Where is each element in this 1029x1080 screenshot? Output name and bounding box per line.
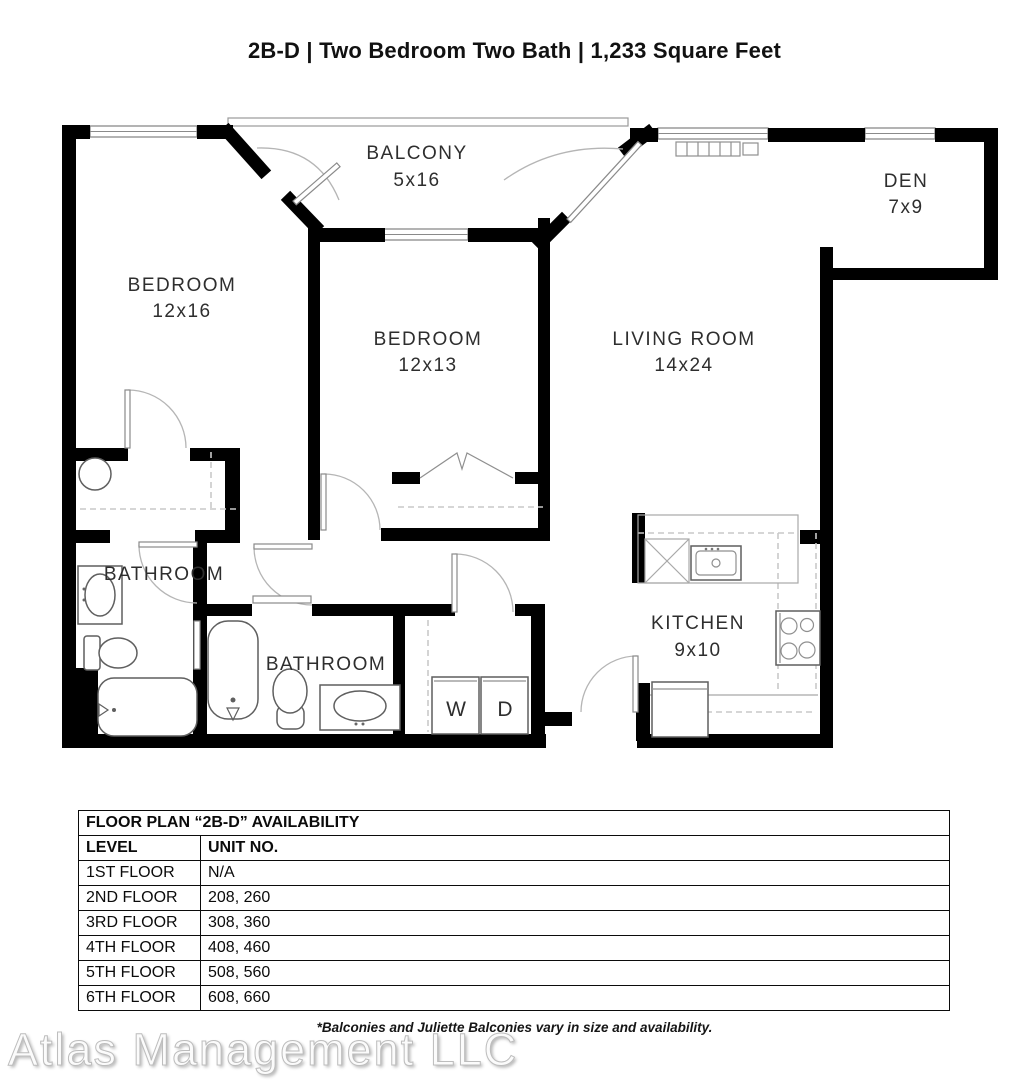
units-cell: 608, 660 xyxy=(201,986,950,1011)
bathtub-fixture xyxy=(98,678,197,736)
room-label-bathroom2: BATHROOM xyxy=(266,654,386,675)
table-row: 5TH FLOOR 508, 560 xyxy=(79,961,950,986)
toilet2-fixture xyxy=(273,669,307,729)
units-cell: 408, 460 xyxy=(201,936,950,961)
units-cell: 208, 260 xyxy=(201,886,950,911)
level-cell: 5TH FLOOR xyxy=(79,961,201,986)
room-label-bedroom2: BEDROOM xyxy=(374,329,483,350)
room-label-balcony: BALCONY xyxy=(366,143,467,164)
bathtub2-fixture xyxy=(208,621,258,720)
washer-label: W xyxy=(446,698,466,721)
table-row: 4TH FLOOR 408, 460 xyxy=(79,936,950,961)
room-label-bathroom1: BATHROOM xyxy=(104,564,224,585)
toilet-fixture xyxy=(84,636,137,670)
kitchen-sink-fixture xyxy=(691,546,741,580)
room-label-kitchen: KITCHEN xyxy=(651,613,745,634)
fireplace-vent xyxy=(676,142,758,156)
room-dims-kitchen: 9x10 xyxy=(674,640,721,661)
units-cell: 508, 560 xyxy=(201,961,950,986)
bifold-closet-doors xyxy=(420,453,513,478)
room-dims-den: 7x9 xyxy=(888,197,923,218)
column-header-level: LEVEL xyxy=(79,836,201,861)
room-label-den: DEN xyxy=(884,171,929,192)
closet-hamper xyxy=(79,458,111,490)
walls xyxy=(62,125,998,748)
table-row: 3RD FLOOR 308, 360 xyxy=(79,911,950,936)
table-title-row: FLOOR PLAN “2B-D” AVAILABILITY xyxy=(79,811,950,836)
dryer-label: D xyxy=(497,698,512,721)
pantry-cabinet xyxy=(645,539,689,583)
floor-plan-flyer: 2B-D | Two Bedroom Two Bath | 1,233 Squa… xyxy=(0,0,1029,1080)
availability-table: FLOOR PLAN “2B-D” AVAILABILITY LEVEL UNI… xyxy=(78,810,950,1011)
level-cell: 4TH FLOOR xyxy=(79,936,201,961)
kitchen-fixtures xyxy=(638,142,820,737)
table-title: FLOOR PLAN “2B-D” AVAILABILITY xyxy=(79,811,950,836)
column-header-unit-no: UNIT NO. xyxy=(201,836,950,861)
pocket-door xyxy=(253,596,311,603)
balcony-disclaimer: *Balconies and Juliette Balconies vary i… xyxy=(0,1020,1029,1035)
level-cell: 2ND FLOOR xyxy=(79,886,201,911)
units-cell: 308, 360 xyxy=(201,911,950,936)
stove-fixture xyxy=(776,611,820,665)
level-cell: 1ST FLOOR xyxy=(79,861,201,886)
glass-panel xyxy=(194,621,200,669)
room-dims-balcony: 5x16 xyxy=(393,170,440,191)
table-row: 2ND FLOOR 208, 260 xyxy=(79,886,950,911)
windows xyxy=(90,126,935,240)
table-row: 6TH FLOOR 608, 660 xyxy=(79,986,950,1011)
vanity2-sink-fixture xyxy=(320,685,400,730)
balcony-railing xyxy=(228,118,628,126)
level-cell: 3RD FLOOR xyxy=(79,911,201,936)
room-dims-bedroom1: 12x16 xyxy=(152,301,211,322)
refrigerator-fixture xyxy=(652,682,708,737)
room-dims-bedroom2: 12x13 xyxy=(398,355,457,376)
room-dims-living: 14x24 xyxy=(654,355,713,376)
table-header-row: LEVEL UNIT NO. xyxy=(79,836,950,861)
room-label-living: LIVING ROOM xyxy=(612,329,755,350)
level-cell: 6TH FLOOR xyxy=(79,986,201,1011)
units-cell: N/A xyxy=(201,861,950,886)
room-label-bedroom1: BEDROOM xyxy=(128,275,237,296)
table-row: 1ST FLOOR N/A xyxy=(79,861,950,886)
